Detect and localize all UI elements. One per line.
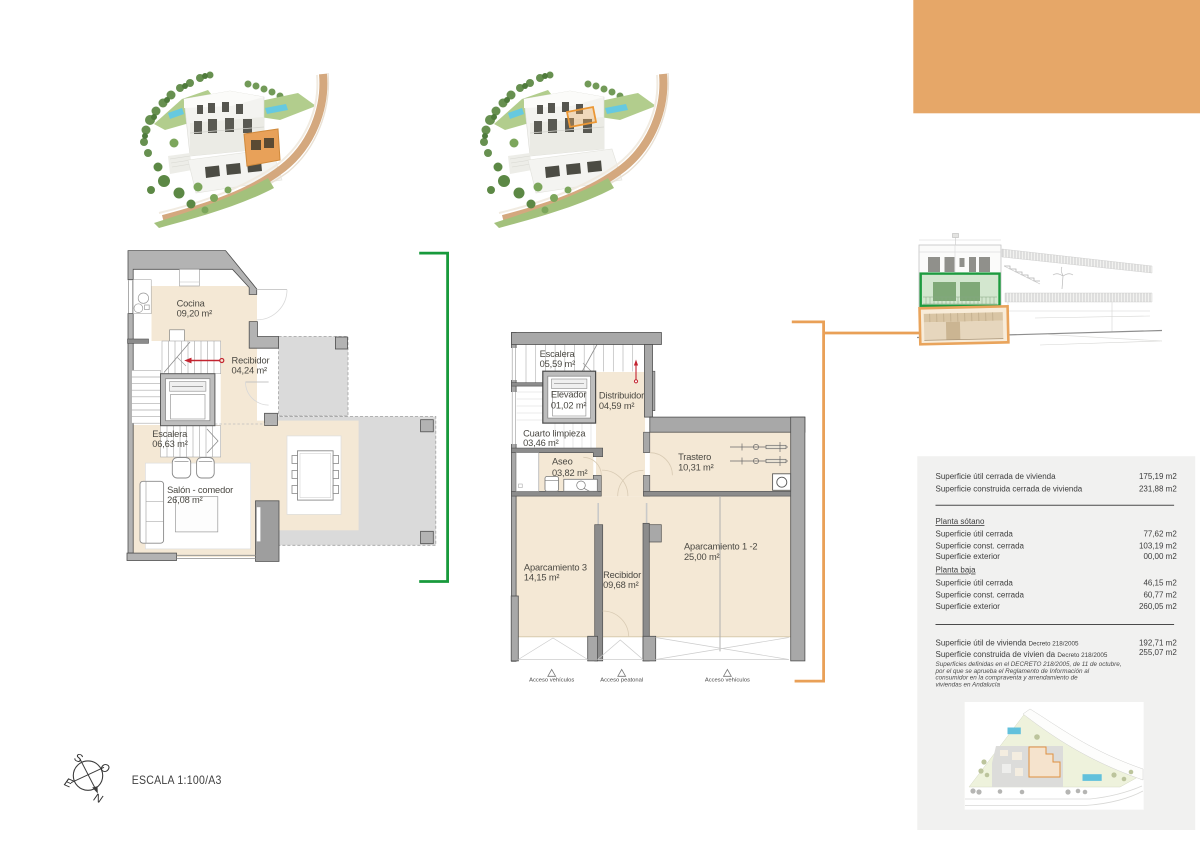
svg-text:04,59 m²: 04,59 m²	[599, 401, 635, 411]
svg-text:25,00 m²: 25,00 m²	[684, 552, 720, 562]
svg-text:Aparcamiento 1 -2: Aparcamiento 1 -2	[684, 542, 757, 552]
svg-text:Cuarto limpieza: Cuarto limpieza	[523, 428, 586, 438]
svg-text:Aparcamiento 3: Aparcamiento 3	[524, 563, 587, 573]
svg-text:255,07 m2: 255,07 m2	[1139, 648, 1177, 657]
svg-text:Recibidor: Recibidor	[603, 570, 641, 580]
svg-text:03,46 m²: 03,46 m²	[523, 438, 559, 448]
svg-text:Superficie exterior: Superficie exterior	[936, 552, 1001, 561]
svg-text:Cocina: Cocina	[177, 299, 206, 309]
svg-text:231,88 m2: 231,88 m2	[1139, 485, 1177, 494]
svg-text:Acceso vehículos: Acceso vehículos	[705, 678, 750, 684]
svg-text:01,02 m²: 01,02 m²	[551, 400, 587, 410]
svg-text:Trastero: Trastero	[678, 452, 711, 462]
svg-text:Escalera: Escalera	[540, 349, 576, 359]
svg-text:Recibidor: Recibidor	[232, 356, 270, 366]
svg-text:ESCALA 1:100/A3: ESCALA 1:100/A3	[132, 773, 222, 787]
svg-text:03,82 m²: 03,82 m²	[552, 468, 588, 478]
svg-text:192,71 m2: 192,71 m2	[1139, 638, 1177, 647]
svg-text:Superficie útil cerrada: Superficie útil cerrada	[936, 578, 1014, 587]
svg-text:Distribuidor: Distribuidor	[599, 390, 644, 400]
svg-text:viviendas en Andalucía: viviendas en Andalucía	[936, 681, 1001, 688]
svg-text:Aseo: Aseo	[552, 457, 573, 467]
svg-text:Escalera: Escalera	[152, 429, 188, 439]
svg-text:60,77 m2: 60,77 m2	[1143, 590, 1177, 599]
svg-text:Superficie exterior: Superficie exterior	[936, 602, 1001, 611]
svg-text:Superficie útil cerrada: Superficie útil cerrada	[936, 530, 1014, 539]
svg-text:103,19 m2: 103,19 m2	[1139, 541, 1177, 550]
svg-text:Acceso peatonal: Acceso peatonal	[600, 678, 643, 684]
svg-text:E: E	[62, 777, 74, 791]
svg-text:Elevador: Elevador	[551, 390, 587, 400]
svg-text:Superficie const. cerrada: Superficie const. cerrada	[936, 590, 1025, 599]
svg-text:05,59 m²: 05,59 m²	[540, 359, 576, 369]
svg-text:260,05 m2: 260,05 m2	[1139, 602, 1177, 611]
svg-text:46,15 m2: 46,15 m2	[1143, 578, 1177, 587]
svg-text:Superficie construida cerrada: Superficie construida cerrada de viviend…	[936, 485, 1083, 494]
svg-text:Superficie útil de vivienda De: Superficie útil de vivienda Decreto 218/…	[936, 638, 1080, 647]
svg-text:Superficie construida de vivie: Superficie construida de vivien da Decre…	[936, 650, 1108, 659]
svg-text:14,15 m²: 14,15 m²	[524, 572, 560, 582]
svg-text:09,68 m²: 09,68 m²	[603, 580, 639, 590]
svg-text:Superficie útil cerrada de viv: Superficie útil cerrada de vivienda	[936, 472, 1057, 481]
svg-text:N: N	[91, 792, 104, 807]
svg-text:09,20 m²: 09,20 m²	[177, 308, 213, 318]
svg-text:00,00 m2: 00,00 m2	[1143, 552, 1177, 561]
svg-text:Salón - comedor: Salón - comedor	[167, 485, 233, 495]
svg-text:Planta sótano: Planta sótano	[936, 517, 985, 526]
svg-text:O: O	[98, 762, 111, 777]
svg-text:175,19 m2: 175,19 m2	[1139, 472, 1177, 481]
svg-text:06,63 m²: 06,63 m²	[152, 439, 188, 449]
svg-text:Planta baja: Planta baja	[936, 566, 977, 575]
svg-text:26,08 m²: 26,08 m²	[167, 495, 203, 505]
svg-text:77,62 m2: 77,62 m2	[1143, 530, 1177, 539]
svg-text:Superficie const. cerrada: Superficie const. cerrada	[936, 541, 1025, 550]
svg-text:10,31 m²: 10,31 m²	[678, 463, 714, 473]
svg-text:04,24 m²: 04,24 m²	[232, 366, 268, 376]
svg-text:Acceso vehículos: Acceso vehículos	[529, 678, 574, 684]
